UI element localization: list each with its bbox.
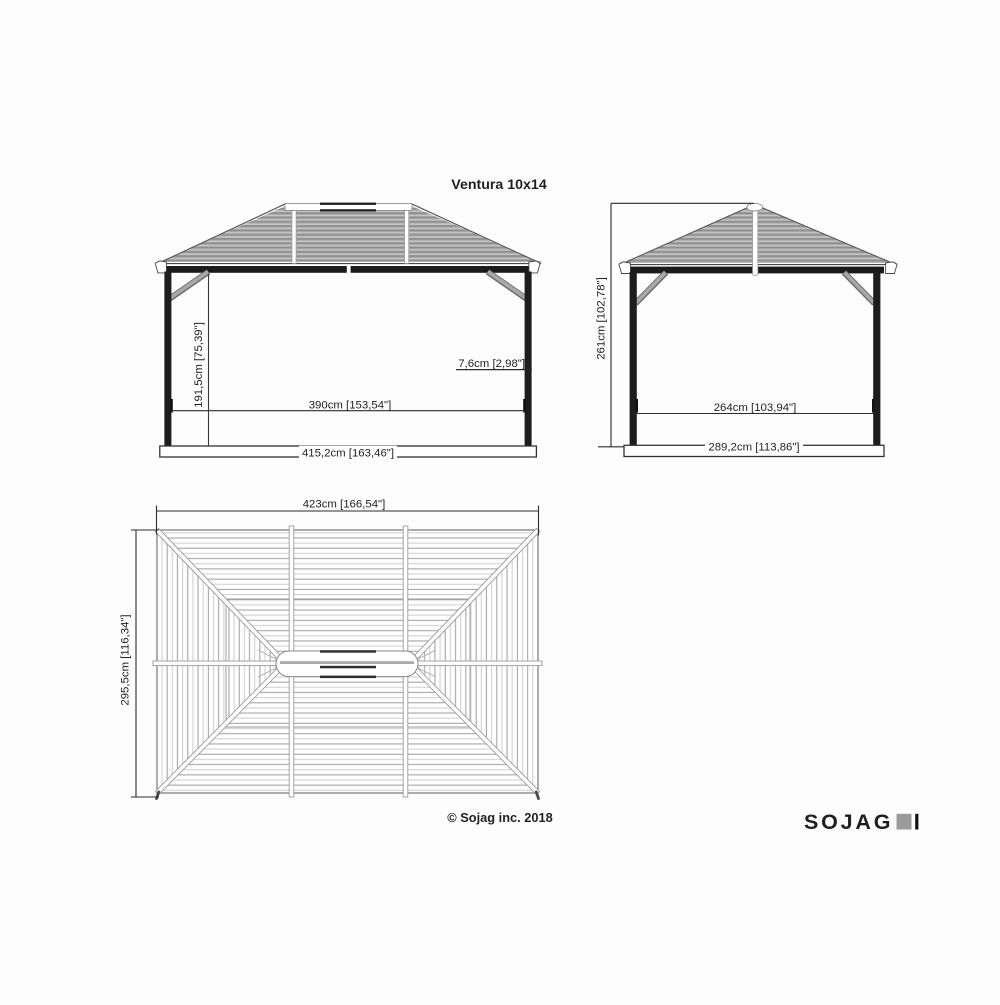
svg-text:SOJAG: SOJAG <box>804 810 893 834</box>
svg-text:264cm [103,94"]: 264cm [103,94"] <box>714 402 797 414</box>
svg-text:423cm [166,54"]: 423cm [166,54"] <box>303 499 386 511</box>
svg-text:289,2cm [113,86"]: 289,2cm [113,86"] <box>708 441 799 453</box>
svg-text:7,6cm [2,98"]: 7,6cm [2,98"] <box>458 358 525 370</box>
svg-text:261cm [102,78"]: 261cm [102,78"] <box>596 277 608 360</box>
svg-text:415,2cm [163,46"]: 415,2cm [163,46"] <box>302 447 394 459</box>
svg-text:© Sojag inc. 2018: © Sojag inc. 2018 <box>447 810 552 825</box>
svg-text:Ventura 10x14: Ventura 10x14 <box>451 177 547 193</box>
svg-text:390cm [153,54"]: 390cm [153,54"] <box>309 400 392 412</box>
svg-text:191,5cm [75,39"]: 191,5cm [75,39"] <box>193 322 205 408</box>
svg-text:295,5cm [116,34"]: 295,5cm [116,34"] <box>120 614 132 705</box>
